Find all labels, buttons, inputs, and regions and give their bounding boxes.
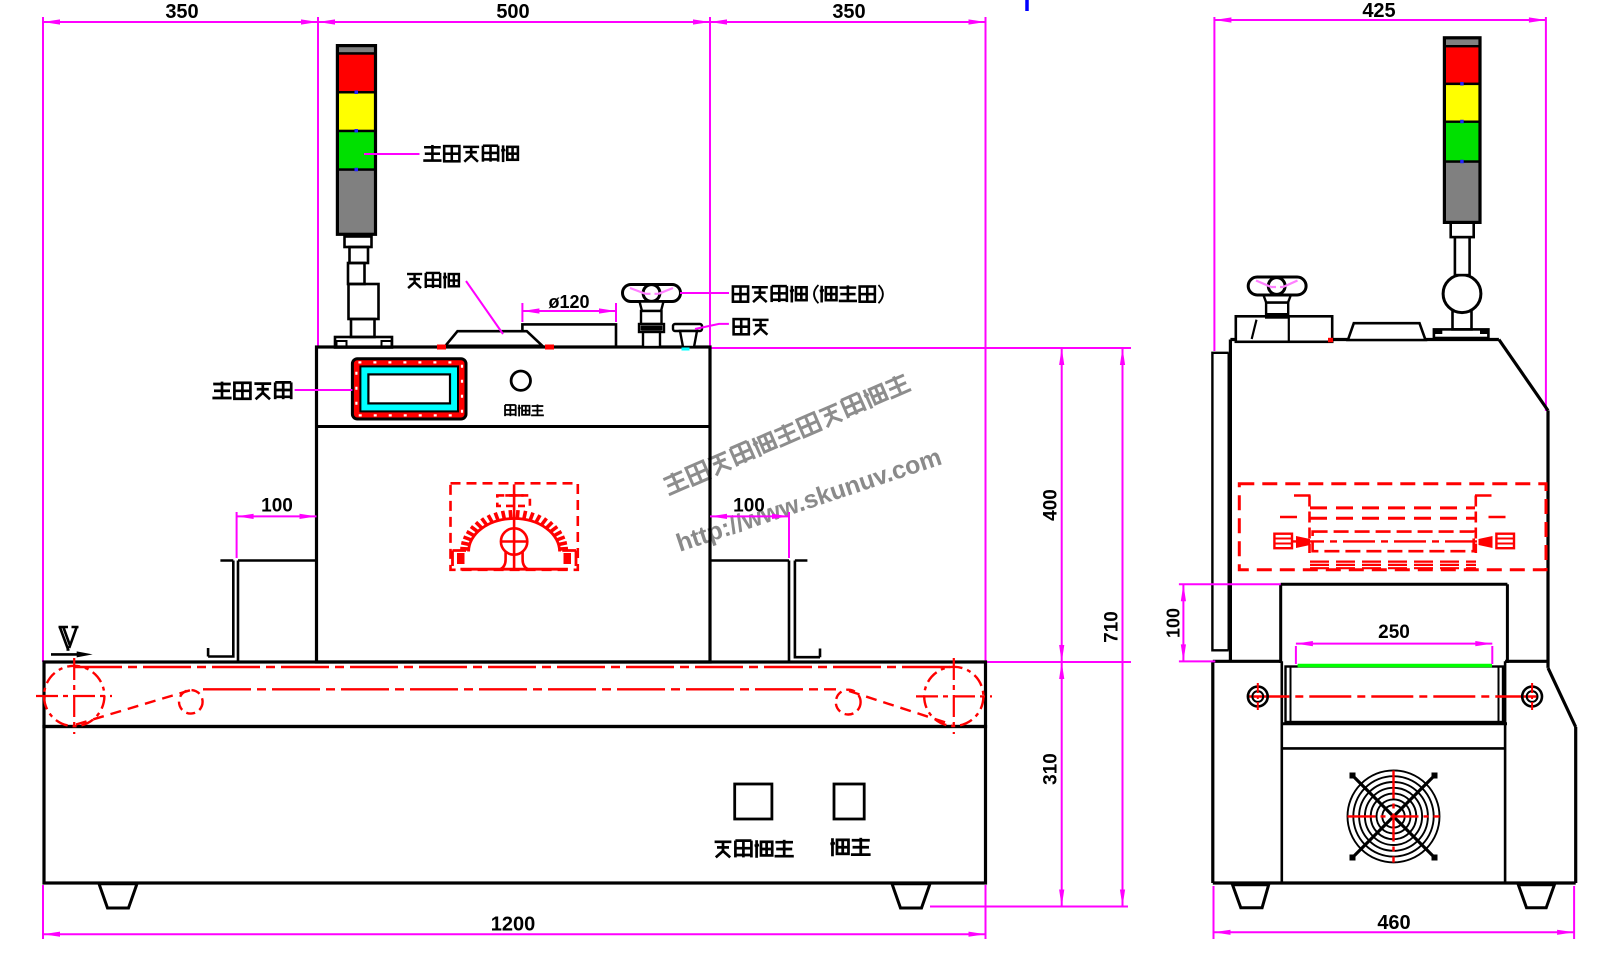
svg-text:http://www.skunuv.com: http://www.skunuv.com	[673, 443, 945, 558]
svg-text:100: 100	[733, 496, 765, 517]
svg-text:1200: 1200	[491, 914, 536, 936]
svg-text:460: 460	[1377, 912, 1410, 934]
svg-text:350: 350	[832, 1, 865, 23]
svg-text:310: 310	[1041, 753, 1062, 785]
svg-text:400: 400	[1041, 489, 1062, 521]
svg-text:100: 100	[261, 496, 293, 517]
svg-text:100: 100	[1164, 608, 1184, 638]
svg-text:250: 250	[1378, 622, 1410, 643]
svg-text:350: 350	[165, 1, 198, 23]
svg-text:710: 710	[1102, 611, 1123, 643]
svg-text:425: 425	[1362, 0, 1395, 22]
svg-text:ø120: ø120	[548, 292, 589, 312]
svg-text:500: 500	[496, 1, 529, 23]
